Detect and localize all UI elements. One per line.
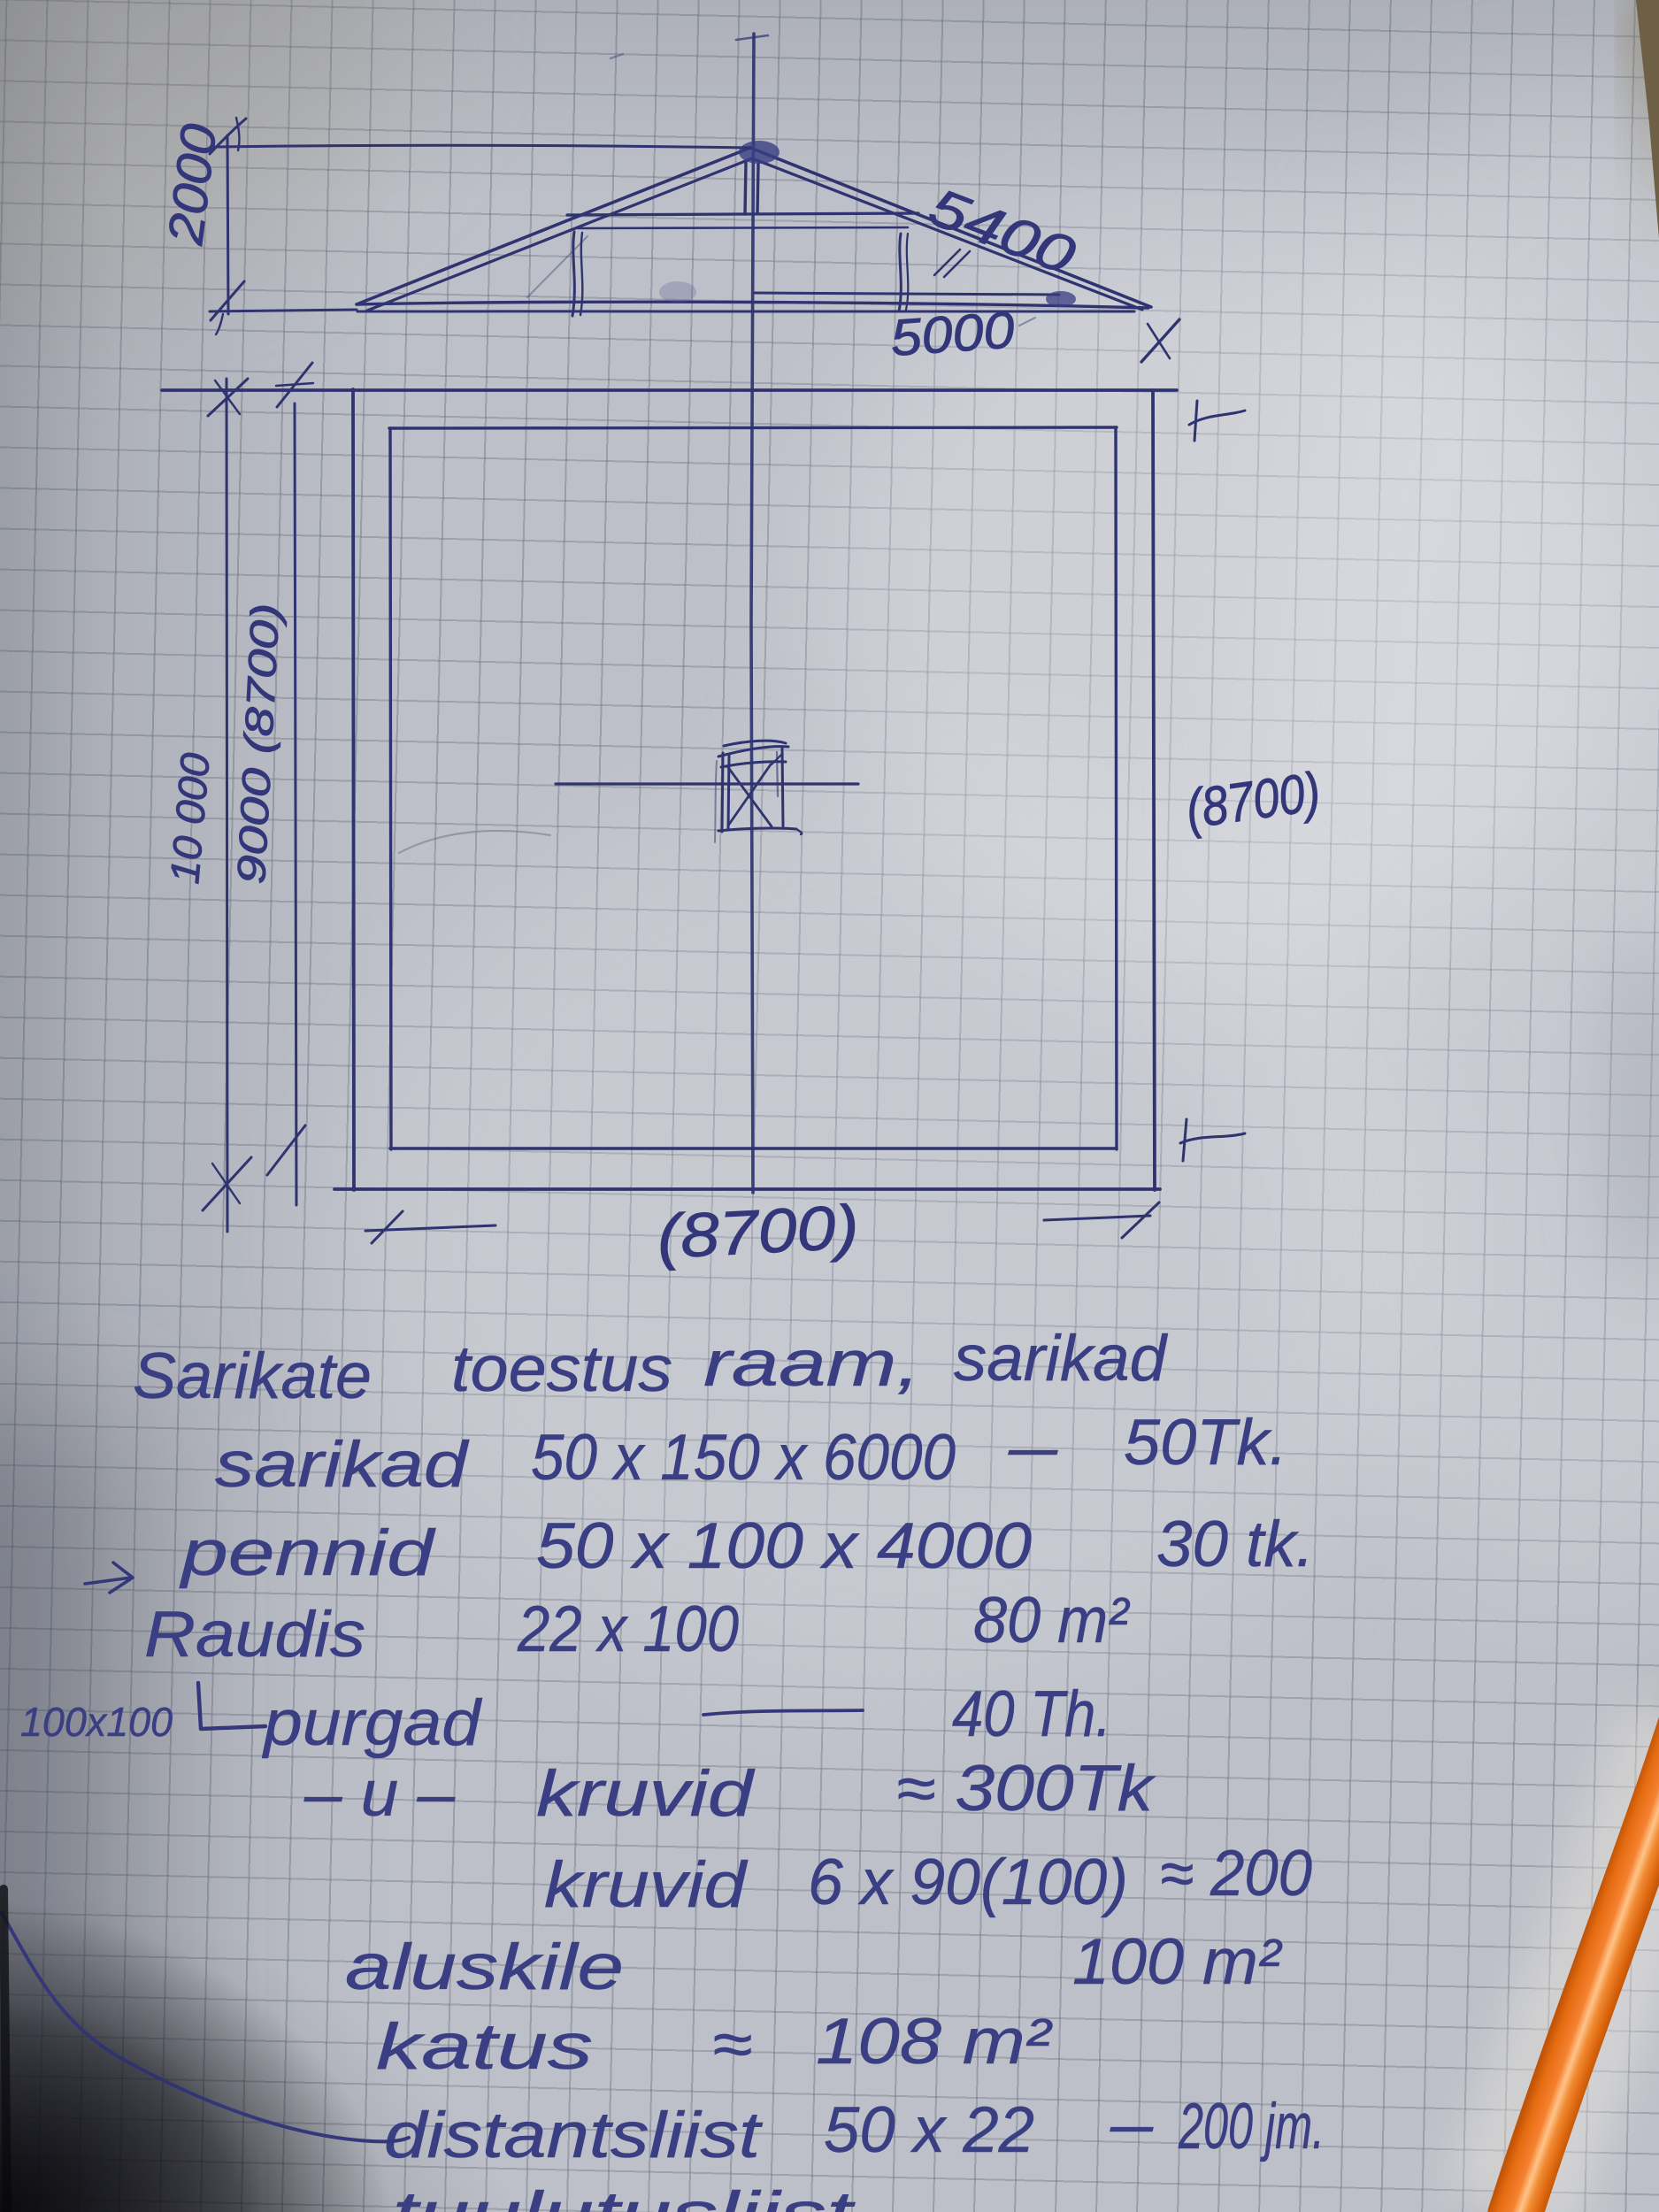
svg-text:raam,: raam, — [703, 1328, 920, 1400]
svg-text:108 m²: 108 m² — [816, 2006, 1053, 2078]
svg-text:80 m²: 80 m² — [973, 1585, 1131, 1656]
svg-text:50 x 100 x 4000: 50 x 100 x 4000 — [536, 1510, 1032, 1582]
svg-text:5000: 5000 — [888, 301, 1016, 367]
svg-text:toestus: toestus — [451, 1333, 672, 1405]
svg-text:distantsliist: distantsliist — [384, 2100, 763, 2171]
svg-text:100 m²: 100 m² — [1072, 1926, 1283, 1998]
svg-text:aluskile: aluskile — [345, 1932, 624, 2003]
svg-text:– u –: – u – — [303, 1758, 456, 1830]
svg-text:30 tk.: 30 tk. — [1156, 1509, 1314, 1580]
svg-text:pennid: pennid — [179, 1517, 436, 1589]
svg-text:100x100: 100x100 — [20, 1699, 173, 1745]
svg-text:10 000: 10 000 — [161, 750, 219, 885]
svg-text:–: – — [1008, 1411, 1059, 1483]
svg-text:40 Th.: 40 Th. — [952, 1678, 1111, 1750]
svg-text:tuulutusliist: tuulutusliist — [392, 2179, 856, 2212]
svg-text:(8700): (8700) — [656, 1192, 861, 1271]
svg-text:50 x 22: 50 x 22 — [824, 2094, 1034, 2166]
svg-text:katus: katus — [376, 2011, 593, 2083]
svg-text:purgad: purgad — [262, 1687, 483, 1759]
svg-text:sarikad: sarikad — [215, 1429, 470, 1501]
svg-text:22 x 100: 22 x 100 — [517, 1594, 739, 1665]
svg-text:kruvid: kruvid — [536, 1758, 756, 1830]
svg-text:≈ 300Tk: ≈ 300Tk — [896, 1753, 1156, 1824]
svg-text:kruvid: kruvid — [544, 1849, 749, 1921]
svg-text:5400: 5400 — [921, 177, 1083, 286]
svg-text:50Tk.: 50Tk. — [1124, 1407, 1287, 1479]
svg-text:≈ 200: ≈ 200 — [1160, 1838, 1312, 1909]
svg-text:≈: ≈ — [712, 2008, 752, 2080]
svg-text:200 jm.: 200 jm. — [1178, 2091, 1325, 2162]
svg-text:–: – — [1110, 2088, 1155, 2160]
svg-text:6 x 90(100): 6 x 90(100) — [808, 1847, 1128, 1918]
svg-text:Sarikate: Sarikate — [133, 1340, 372, 1412]
svg-text:50 x 150 x 6000: 50 x 150 x 6000 — [531, 1422, 956, 1494]
svg-text:Raudis: Raudis — [144, 1599, 365, 1671]
svg-text:9000 (8700): 9000 (8700) — [228, 602, 288, 885]
svg-text:sarikad: sarikad — [954, 1323, 1168, 1394]
